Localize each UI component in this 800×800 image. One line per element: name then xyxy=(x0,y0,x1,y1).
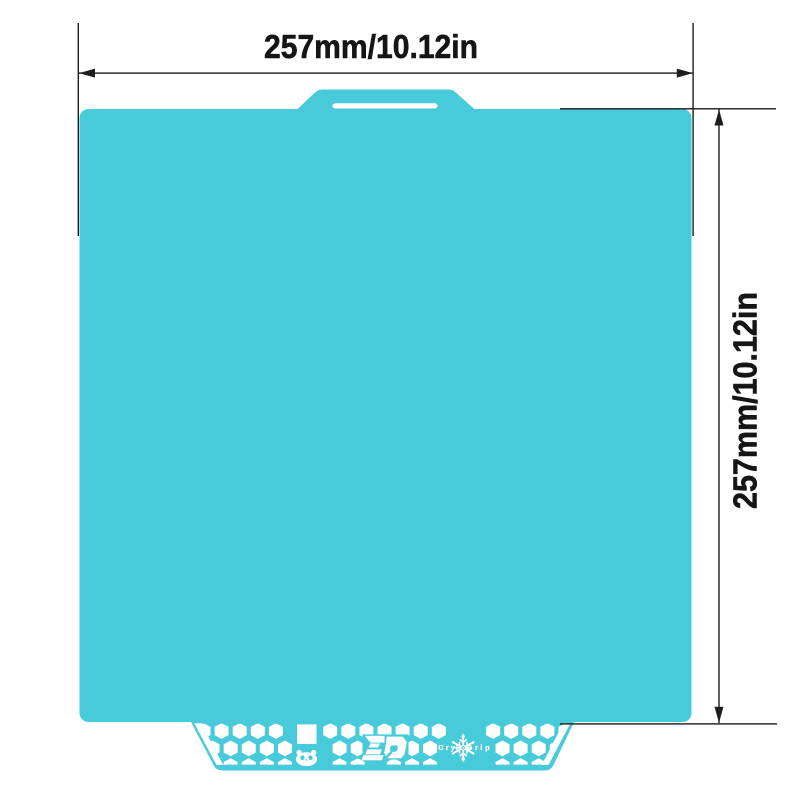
svg-text:257mm/10.12in: 257mm/10.12in xyxy=(264,28,478,65)
svg-text:Cry: Cry xyxy=(438,743,457,752)
svg-text:257mm/10.12in: 257mm/10.12in xyxy=(727,292,764,509)
